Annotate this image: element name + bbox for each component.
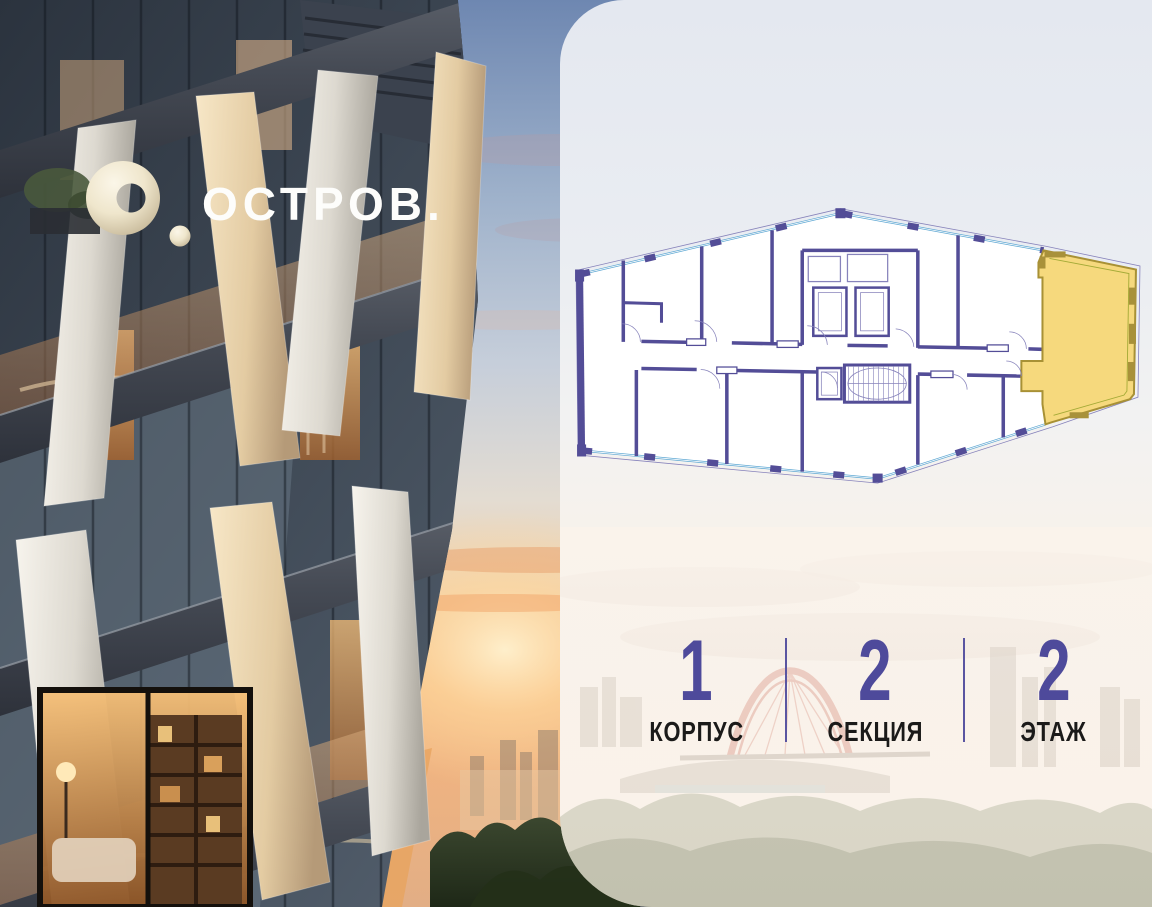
- stats-row: 1 КОРПУС 2 СЕКЦИЯ 2 ЭТАЖ: [608, 632, 1142, 752]
- stat-building: 1 КОРПУС: [608, 632, 785, 752]
- stat-building-value: 1: [680, 632, 713, 711]
- info-card: 1 КОРПУС 2 СЕКЦИЯ 2 ЭТАЖ: [560, 0, 1152, 907]
- stat-floor-value: 2: [1037, 632, 1070, 711]
- stat-section: 2 СЕКЦИЯ: [787, 632, 964, 752]
- sofa: [52, 838, 136, 882]
- interior-room: [40, 690, 250, 907]
- page: ОСТРОВ.: [0, 0, 1152, 907]
- stat-floor-label: ЭТАЖ: [1021, 716, 1087, 748]
- stat-floor: 2 ЭТАЖ: [965, 632, 1142, 752]
- building-photo: [0, 0, 640, 907]
- stat-section-label: СЕКЦИЯ: [827, 716, 923, 748]
- floor-plan[interactable]: [566, 202, 1144, 524]
- stat-section-value: 2: [858, 632, 891, 711]
- lamp-glow: [56, 762, 76, 782]
- stat-building-label: КОРПУС: [649, 716, 744, 748]
